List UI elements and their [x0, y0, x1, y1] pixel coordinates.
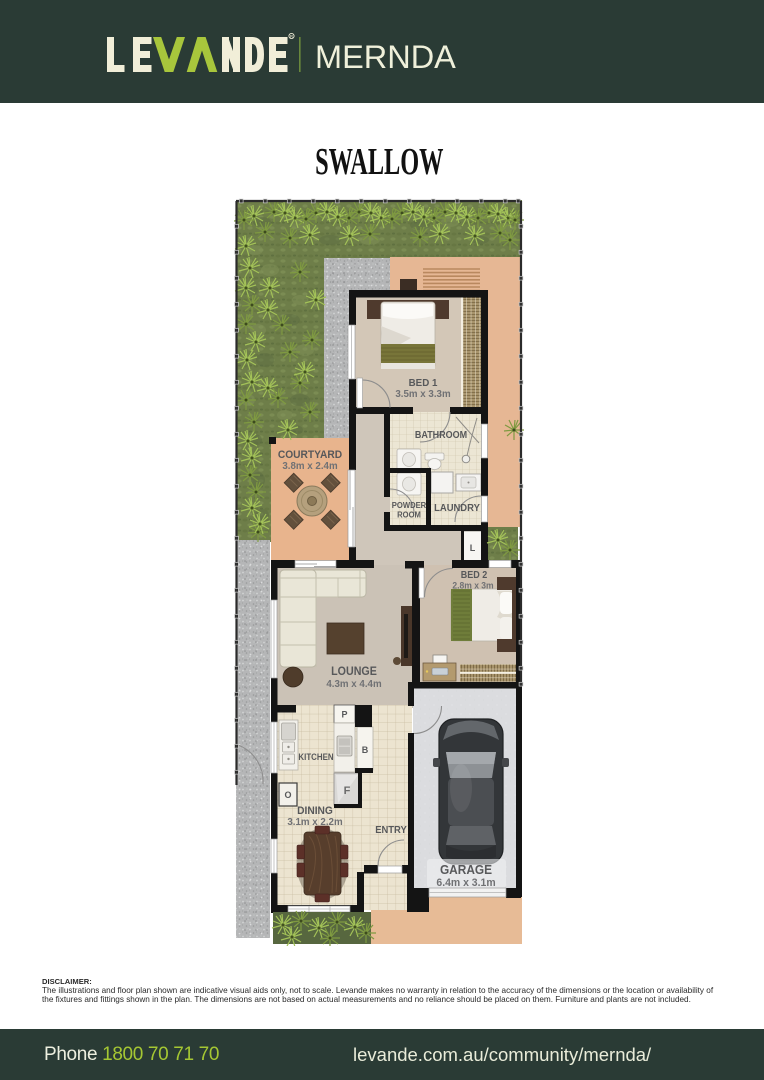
svg-text:6.4m x 3.1m: 6.4m x 3.1m	[436, 877, 495, 889]
svg-text:3.8m x 2.4m: 3.8m x 2.4m	[282, 461, 337, 472]
svg-text:L: L	[470, 543, 476, 553]
svg-text:4.3m x 4.4m: 4.3m x 4.4m	[326, 679, 381, 690]
svg-text:LAUNDRY: LAUNDRY	[434, 503, 480, 515]
svg-text:3.5m x 3.3m: 3.5m x 3.3m	[395, 389, 450, 400]
svg-text:DINING: DINING	[297, 805, 333, 817]
svg-text:F: F	[344, 785, 351, 797]
svg-text:P: P	[341, 710, 347, 720]
svg-text:COURTYARD: COURTYARD	[278, 449, 343, 461]
svg-text:MERNDA: MERNDA	[315, 39, 456, 75]
svg-text:BED 1: BED 1	[409, 378, 438, 389]
svg-text:BATHROOM: BATHROOM	[415, 430, 467, 442]
svg-text:R: R	[290, 34, 293, 39]
svg-text:ROOM: ROOM	[397, 510, 421, 519]
svg-text:3.1m x 2.2m: 3.1m x 2.2m	[287, 817, 342, 828]
svg-text:ENTRY: ENTRY	[375, 825, 407, 837]
svg-text:POWDER: POWDER	[392, 501, 427, 510]
svg-text:2.8m x 3m: 2.8m x 3m	[452, 580, 493, 591]
svg-text:O: O	[284, 790, 291, 800]
svg-text:GARAGE: GARAGE	[440, 863, 492, 877]
svg-text:LOUNGE: LOUNGE	[331, 666, 377, 678]
svg-text:B: B	[362, 745, 369, 755]
svg-text:KITCHEN: KITCHEN	[298, 752, 333, 763]
